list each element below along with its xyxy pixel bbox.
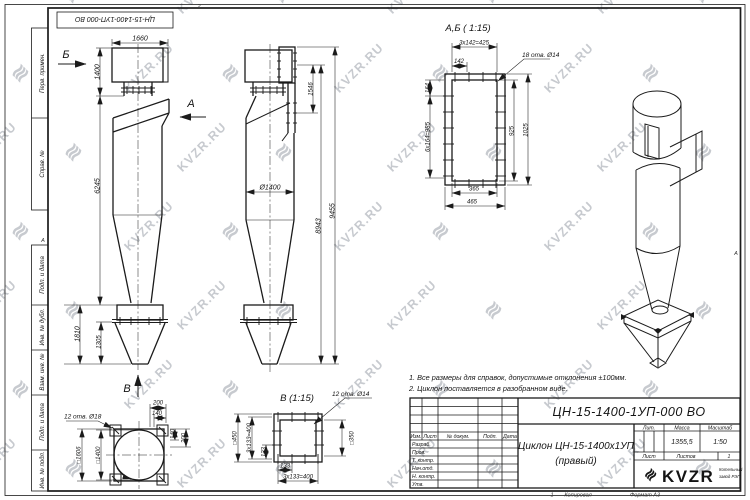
tb-name-line1: Циклон ЦН-15-1400х1УП <box>518 441 635 452</box>
dim-1025: 1025 <box>524 123 530 137</box>
kvzr-logo-text: KVZR <box>662 467 714 486</box>
isometric-view <box>621 91 702 368</box>
title-block: Изм. Лист № докум. Подп. Дата Разраб. Пр… <box>410 398 743 488</box>
dim-140-top: 140 <box>152 411 163 417</box>
top-view: 12 отв. Ø18 200 140 140 200 □1606 □1400 <box>64 401 191 490</box>
inverted-doc-number-box: ЦН-15-1400-1УП-000 ВО <box>57 12 173 28</box>
frame-col-inv-podl: Инв. № подл. <box>39 451 46 488</box>
view-arrow-a-label: А <box>186 98 194 110</box>
view-arrow-v-label: В <box>123 383 130 395</box>
tb-row-prov: Пров. <box>412 450 426 456</box>
tb-row-tkontr: Т. контр. <box>412 458 434 464</box>
frame-left-columns: Перв. примен. Справ. № Подп. и дата Инв.… <box>32 28 49 491</box>
tb-row-nachotd: Нач.отд. <box>412 466 434 472</box>
zone-left: А <box>40 238 45 244</box>
dim-164: 164 <box>426 82 432 93</box>
tb-scale-header: Масштаб <box>708 426 733 432</box>
zone-right: А <box>733 251 738 257</box>
tb-lit-header: Лит. <box>642 426 655 432</box>
dim-925: 925 <box>510 125 516 136</box>
front-view: 1660 1400 6245 1810 1305 Б А В <box>58 36 206 398</box>
dim-1400: 1400 <box>95 64 102 80</box>
tb-col-izm: Изм. <box>410 434 421 440</box>
engineering-drawing-page: { "watermark": { "text": "KVZR.RU", "ico… <box>0 0 750 500</box>
dim-1660: 1660 <box>132 36 148 43</box>
tb-col-data: Дата <box>502 434 517 440</box>
dim-3x133-h: 3х133=400 <box>283 475 314 481</box>
zone-top: 2 <box>196 4 200 10</box>
tb-col-doc: № докум. <box>447 434 470 440</box>
tb-mass-header: Масса <box>674 426 689 432</box>
dim-sq1400: □1400 <box>96 446 102 464</box>
tb-row-nkontr: Н. контр. <box>412 474 435 480</box>
dim-1546: 1546 <box>309 82 315 96</box>
kvzr-logo-sub1: Котельный <box>719 467 743 472</box>
kvzr-logo-sub2: завод РЭП <box>718 474 741 479</box>
frame-col-podp1: Подп. и дата <box>40 256 46 294</box>
dim-1305: 1305 <box>97 335 103 349</box>
section-ab: А,Б ( 1:15) 3х142=425 142 18 отв. Ø14 16… <box>425 23 560 210</box>
dim-sq1606: □1606 <box>77 446 83 464</box>
dim-3x142: 3х142=425 <box>459 41 490 47</box>
kopiroval-label: Копировал <box>564 493 591 499</box>
dim-200-top: 200 <box>152 401 164 407</box>
dim-365: 365 <box>469 187 480 193</box>
dim-133-h: 133 <box>280 464 291 470</box>
dim-d1400: Ø1400 <box>258 185 280 192</box>
frame-col-perv: Перв. примен. <box>40 53 46 93</box>
drawing-svg: Перв. примен. Справ. № Подп. и дата Инв.… <box>0 0 750 500</box>
dim-140-right: 140 <box>171 428 177 439</box>
notes: 1. Все размеры для справок, допустимые о… <box>408 373 627 393</box>
view-arrow-b-label: Б <box>62 49 69 61</box>
tb-sheets-value: 1 <box>728 454 731 460</box>
dim-sq450: □450 <box>233 431 239 445</box>
bin-corner-bolts <box>621 312 694 334</box>
frame-col-inv-dubl: Инв. № дубл. <box>39 309 46 346</box>
section-v-title: В (1:15) <box>280 393 314 404</box>
side-view: Ø1400 1546 8943 9455 <box>240 44 339 372</box>
format-label: Формат А3 <box>630 493 661 499</box>
tb-doc-number: ЦН-15-1400-1УП-000 ВО <box>552 405 705 419</box>
dim-9455: 9455 <box>330 203 337 219</box>
kvzr-logo: ≋ KVZR Котельный завод РЭП <box>641 465 743 486</box>
dim-6x164: 6х164=985 <box>426 121 432 152</box>
tb-sheet-label: Лист <box>641 454 656 460</box>
dim-133-v: 133 <box>262 446 268 457</box>
section-ab-holes: 18 отв. Ø14 <box>522 52 560 59</box>
zone-bottom: 1 <box>550 493 553 499</box>
dim-200-right: 200 <box>182 432 188 444</box>
frame-col-podp2: Подп. и дата <box>40 403 46 441</box>
dim-6245: 6245 <box>95 178 102 194</box>
tb-row-utv: Утв. <box>412 482 424 488</box>
dim-3x133-v: 3х133=400 <box>247 422 253 453</box>
section-v-holes: 12 отв. Ø14 <box>332 391 370 398</box>
dim-1810: 1810 <box>75 326 82 342</box>
section-ab-title: А,Б ( 1:15) <box>444 23 490 34</box>
tb-col-list: Лист <box>422 434 437 440</box>
dim-8943: 8943 <box>316 218 323 234</box>
section-v: В (1:15) 12 отв. Ø14 □350 □450 3х133=400… <box>233 391 373 484</box>
dim-465: 465 <box>467 200 478 206</box>
tb-name-line2: (правый) <box>555 456 596 467</box>
dim-sq350: □350 <box>350 431 356 445</box>
note-1: 1. Все размеры для справок, допустимые о… <box>409 373 627 382</box>
tb-row-razrab: Разраб. <box>412 442 431 448</box>
kvzr-coil-icon: ≋ <box>641 465 662 486</box>
tb-scale-value: 1:50 <box>713 439 727 446</box>
tb-sheets-label: Листов <box>676 454 696 460</box>
frame-col-vzam: Взам. инв. № <box>39 353 46 391</box>
frame-col-sprav: Справ. № <box>39 150 46 178</box>
inverted-doc-number: ЦН-15-1400-1УП-000 ВО <box>75 15 155 22</box>
note-2: 2. Циклон поставляется в разобранном вид… <box>408 384 568 393</box>
tb-mass-value: 1355,5 <box>671 439 693 446</box>
top-view-holes: 12 отв. Ø18 <box>64 414 102 421</box>
tb-col-podp: Подп. <box>483 434 497 440</box>
dim-142: 142 <box>454 59 465 65</box>
